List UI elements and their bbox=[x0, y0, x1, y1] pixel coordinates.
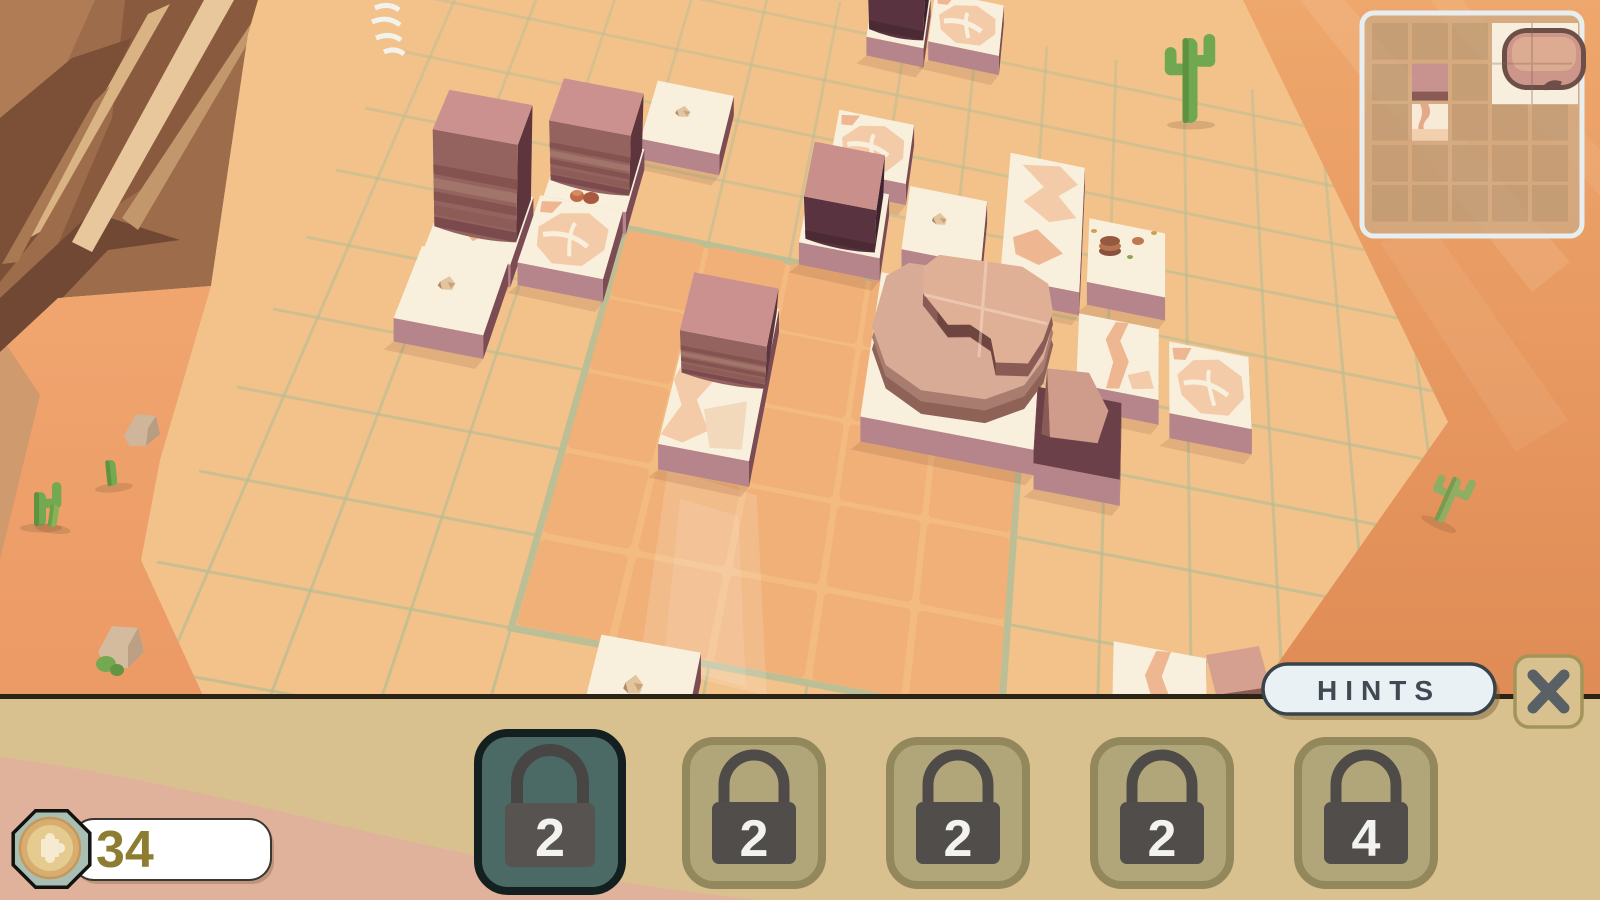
svg-text:2: 2 bbox=[535, 808, 565, 868]
svg-text:34: 34 bbox=[96, 821, 154, 879]
svg-text:2: 2 bbox=[1148, 810, 1177, 868]
svg-text:4: 4 bbox=[1352, 810, 1381, 868]
svg-text:HINTS: HINTS bbox=[1317, 675, 1441, 706]
svg-text:2: 2 bbox=[944, 810, 973, 868]
svg-text:2: 2 bbox=[740, 810, 769, 868]
